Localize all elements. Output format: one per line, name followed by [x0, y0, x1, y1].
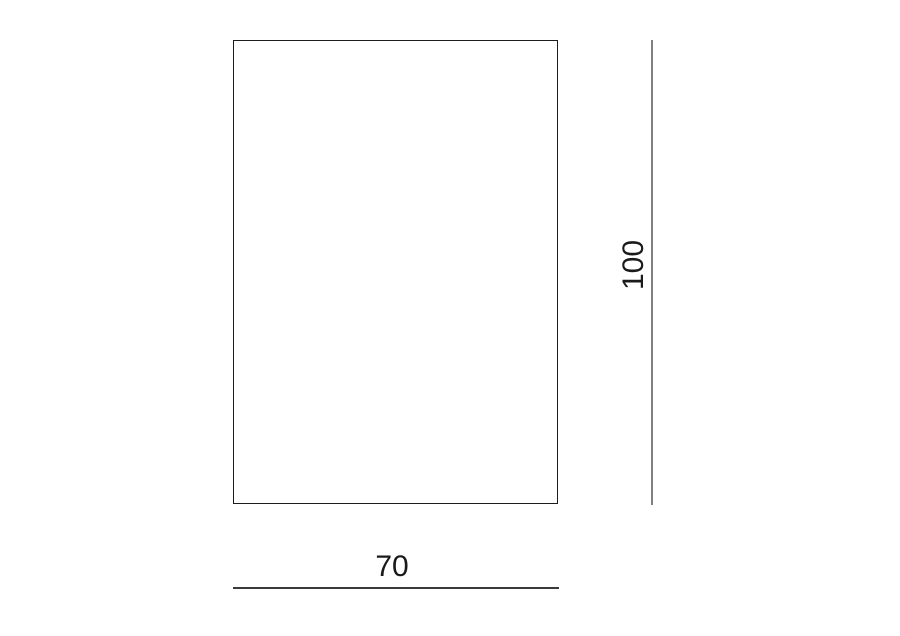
rectangle-outline [233, 40, 558, 504]
height-dimension-label: 100 [619, 225, 649, 305]
drawing-canvas: 100 70 [0, 0, 900, 636]
width-dimension-line [233, 587, 559, 589]
width-dimension-label: 70 [342, 552, 442, 582]
height-dimension-line [651, 40, 653, 505]
